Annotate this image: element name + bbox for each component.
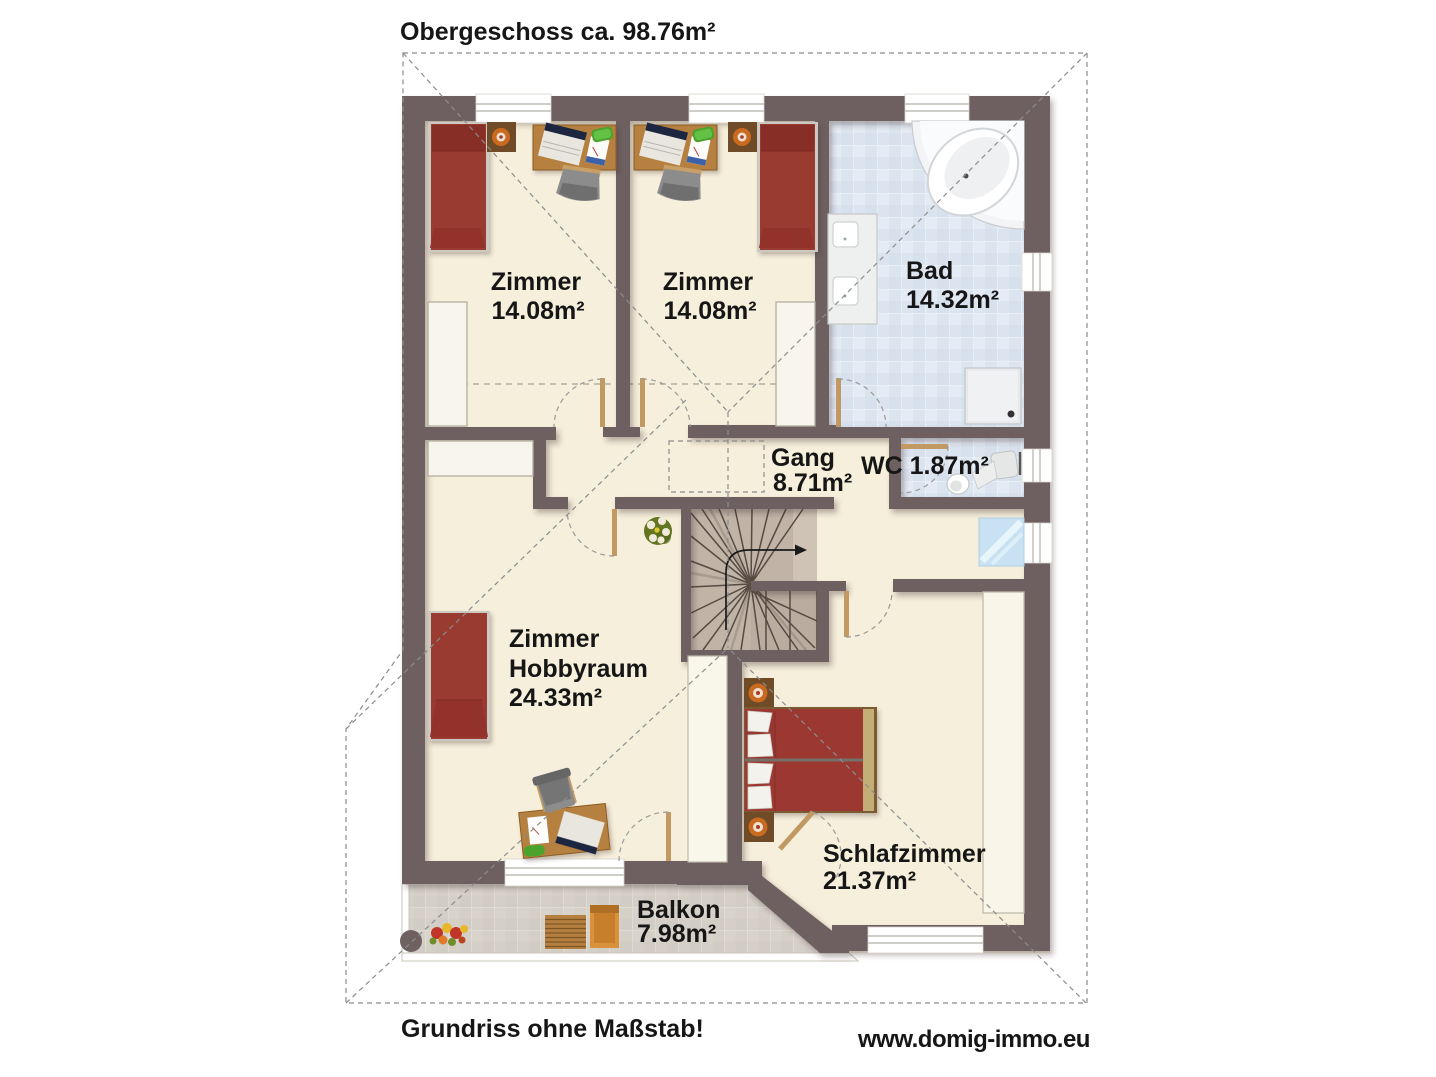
svg-text:Zimmer: Zimmer	[663, 268, 754, 296]
svg-text:Bad: Bad	[906, 257, 953, 285]
svg-text:Gang: Gang	[771, 444, 835, 472]
svg-text:7.98m²: 7.98m²	[637, 920, 716, 948]
svg-text:14.08m²: 14.08m²	[663, 297, 756, 325]
svg-text:WC 1.87m²: WC 1.87m²	[861, 452, 989, 480]
svg-text:8.71m²: 8.71m²	[773, 469, 852, 497]
svg-text:Grundriss ohne Maßstab!: Grundriss ohne Maßstab!	[401, 1015, 704, 1043]
svg-text:21.37m²: 21.37m²	[823, 867, 916, 895]
svg-text:Schlafzimmer: Schlafzimmer	[823, 840, 986, 868]
svg-text:14.32m²: 14.32m²	[906, 286, 999, 314]
svg-text:Hobbyraum: Hobbyraum	[509, 655, 648, 683]
svg-text:Zimmer: Zimmer	[509, 625, 600, 653]
svg-text:www.domig-immo.eu: www.domig-immo.eu	[857, 1026, 1090, 1053]
svg-text:Obergeschoss ca. 98.76m²: Obergeschoss ca. 98.76m²	[400, 18, 715, 46]
svg-text:Zimmer: Zimmer	[491, 268, 582, 296]
svg-text:24.33m²: 24.33m²	[509, 684, 602, 712]
svg-text:14.08m²: 14.08m²	[491, 297, 584, 325]
